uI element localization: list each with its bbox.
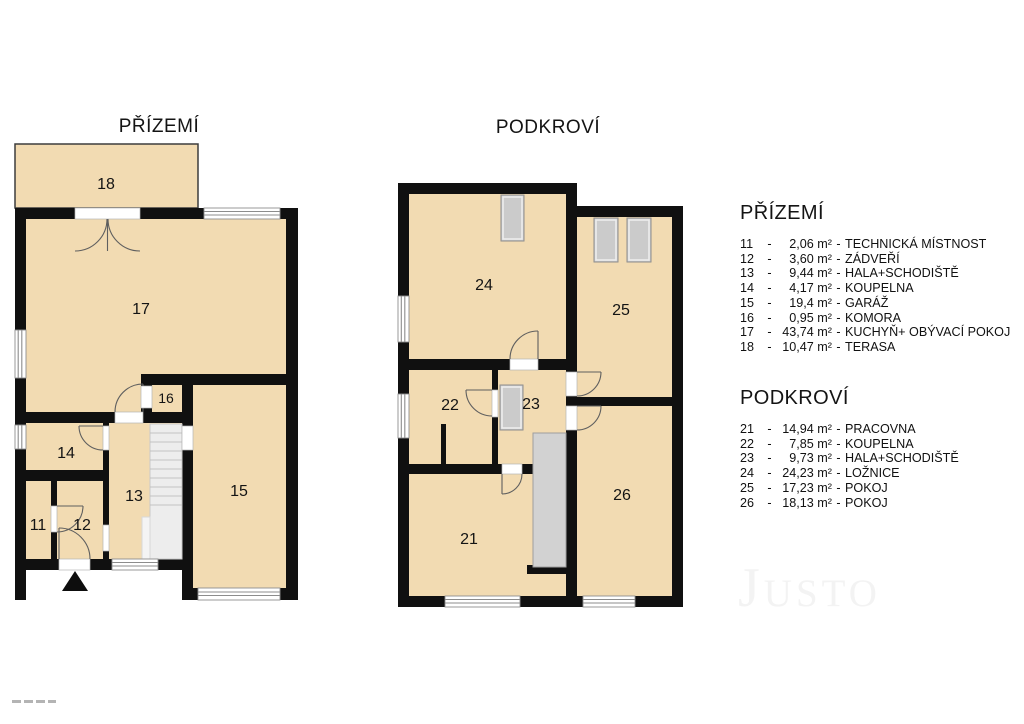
legend-item: 26 - 18,13 m² - POKOJ bbox=[740, 496, 1024, 511]
legend-room-area: 10,47 m² bbox=[777, 340, 832, 355]
legend-item: 25 - 17,23 m² - POKOJ bbox=[740, 481, 1024, 496]
fine-print bbox=[12, 700, 56, 703]
legend-room-area: 18,13 m² bbox=[777, 496, 832, 511]
attic-plan-title: PODKROVÍ bbox=[496, 117, 600, 139]
legend-separator: - bbox=[762, 311, 777, 326]
legend-separator: - bbox=[832, 237, 845, 252]
legend-attic-section: PODKROVÍ 21 - 14,94 m² - PRACOVNA 22 - 7… bbox=[740, 387, 1024, 510]
legend-attic-title: PODKROVÍ bbox=[740, 387, 1024, 410]
legend-separator: - bbox=[762, 451, 777, 466]
legend-room-name: HALA+SCHODIŠTĚ bbox=[845, 266, 959, 281]
legend-item: 16 - 0,95 m² - KOMORA bbox=[740, 311, 1024, 326]
legend-room-number: 14 bbox=[740, 281, 762, 296]
legend-separator: - bbox=[762, 481, 777, 496]
legend-separator: - bbox=[832, 496, 845, 511]
room-number-label: 11 bbox=[30, 517, 47, 534]
legend-separator: - bbox=[832, 340, 845, 355]
legend-room-area: 14,94 m² bbox=[777, 422, 832, 437]
legend-item: 18 - 10,47 m² - TERASA bbox=[740, 340, 1024, 355]
legend-room-number: 22 bbox=[740, 437, 762, 452]
legend-room-number: 15 bbox=[740, 296, 762, 311]
room-number-label: 25 bbox=[612, 302, 630, 319]
room-number-label: 17 bbox=[132, 301, 150, 318]
legend-room-area: 19,4 m² bbox=[777, 296, 832, 311]
legend-room-name: GARÁŽ bbox=[845, 296, 888, 311]
legend-separator: - bbox=[832, 451, 845, 466]
legend-room-name: TECHNICKÁ MÍSTNOST bbox=[845, 237, 986, 252]
legend-room-name: ZÁDVEŘÍ bbox=[845, 252, 900, 267]
legend-room-area: 9,44 m² bbox=[777, 266, 832, 281]
legend-room-name: TERASA bbox=[845, 340, 895, 355]
legend-item: 24 - 24,23 m² - LOŽNICE bbox=[740, 466, 1024, 481]
legend-separator: - bbox=[762, 466, 777, 481]
garage-door bbox=[198, 588, 280, 600]
legend-room-area: 4,17 m² bbox=[777, 281, 832, 296]
legend-separator: - bbox=[832, 311, 845, 326]
legend-separator: - bbox=[832, 481, 845, 496]
attic-floor-plan: 24 25 22 23 21 26 bbox=[385, 170, 700, 630]
room-number-label: 21 bbox=[460, 531, 478, 548]
room-number-label: 23 bbox=[522, 396, 540, 413]
legend-room-number: 16 bbox=[740, 311, 762, 326]
room-number-label: 13 bbox=[125, 488, 143, 505]
legend-room-number: 18 bbox=[740, 340, 762, 355]
ground-floor-plan: 18 17 16 14 11 12 13 15 bbox=[0, 110, 330, 640]
floorplan-image: PŘÍZEMÍ PODKROVÍ bbox=[0, 0, 1024, 724]
legend-item: 17 - 43,74 m² - KUCHYŇ+ OBÝVACÍ POKOJ bbox=[740, 325, 1024, 340]
legend-room-name: KOUPELNA bbox=[845, 281, 914, 296]
legend-separator: - bbox=[762, 422, 777, 437]
legend-separator: - bbox=[832, 281, 845, 296]
legend-room-area: 17,23 m² bbox=[777, 481, 832, 496]
legend-separator: - bbox=[762, 325, 777, 340]
legend-item: 23 - 9,73 m² - HALA+SCHODIŠTĚ bbox=[740, 451, 1024, 466]
legend-room-number: 21 bbox=[740, 422, 762, 437]
legend-room-name: PRACOVNA bbox=[845, 422, 916, 437]
legend-room-name: KUCHYŇ+ OBÝVACÍ POKOJ bbox=[845, 325, 1010, 340]
room-number-label: 12 bbox=[73, 517, 91, 534]
legend-ground-title: PŘÍZEMÍ bbox=[740, 202, 1024, 225]
legend-room-area: 0,95 m² bbox=[777, 311, 832, 326]
legend-room-area: 24,23 m² bbox=[777, 466, 832, 481]
legend-room-area: 2,06 m² bbox=[777, 237, 832, 252]
legend-item: 14 - 4,17 m² - KOUPELNA bbox=[740, 281, 1024, 296]
legend-item: 11 - 2,06 m² - TECHNICKÁ MÍSTNOST bbox=[740, 237, 1024, 252]
justo-watermark: Justo bbox=[738, 556, 881, 620]
legend-separator: - bbox=[762, 252, 777, 267]
room-number-label: 24 bbox=[475, 277, 493, 294]
legend-room-number: 11 bbox=[740, 237, 762, 252]
legend-separator: - bbox=[762, 281, 777, 296]
legend-room-number: 25 bbox=[740, 481, 762, 496]
legend-item: 15 - 19,4 m² - GARÁŽ bbox=[740, 296, 1024, 311]
legend-separator: - bbox=[762, 296, 777, 311]
legend-room-number: 24 bbox=[740, 466, 762, 481]
legend-separator: - bbox=[762, 237, 777, 252]
legend-room-number: 17 bbox=[740, 325, 762, 340]
legend-separator: - bbox=[762, 266, 777, 281]
attic-stairs bbox=[533, 433, 566, 567]
legend-room-area: 7,85 m² bbox=[777, 437, 832, 452]
room-number-label: 16 bbox=[158, 390, 174, 406]
legend-item: 12 - 3,60 m² - ZÁDVEŘÍ bbox=[740, 252, 1024, 267]
legend-ground-items: 11 - 2,06 m² - TECHNICKÁ MÍSTNOST 12 - 3… bbox=[740, 237, 1024, 355]
legend-room-area: 43,74 m² bbox=[777, 325, 832, 340]
legend-item: 22 - 7,85 m² - KOUPELNA bbox=[740, 437, 1024, 452]
legend-item: 21 - 14,94 m² - PRACOVNA bbox=[740, 422, 1024, 437]
legend-room-name: POKOJ bbox=[845, 496, 888, 511]
legend-separator: - bbox=[832, 266, 845, 281]
legend-separator: - bbox=[832, 325, 845, 340]
room-number-label: 15 bbox=[230, 483, 248, 500]
legend-separator: - bbox=[832, 296, 845, 311]
legend-attic-items: 21 - 14,94 m² - PRACOVNA 22 - 7,85 m² - … bbox=[740, 422, 1024, 510]
legend-separator: - bbox=[832, 252, 845, 267]
legend-separator: - bbox=[762, 496, 777, 511]
legend-room-name: HALA+SCHODIŠTĚ bbox=[845, 451, 959, 466]
entrance-arrow-icon bbox=[62, 571, 88, 591]
legend-room-name: LOŽNICE bbox=[845, 466, 900, 481]
legend-room-number: 13 bbox=[740, 266, 762, 281]
room-number-label: 14 bbox=[57, 445, 75, 462]
room-number-label: 22 bbox=[441, 397, 459, 414]
legend-room-number: 12 bbox=[740, 252, 762, 267]
legend-separator: - bbox=[832, 422, 845, 437]
legend-separator: - bbox=[832, 437, 845, 452]
room-number-label: 26 bbox=[613, 487, 631, 504]
legend-room-area: 3,60 m² bbox=[777, 252, 832, 267]
legend-item: 13 - 9,44 m² - HALA+SCHODIŠTĚ bbox=[740, 266, 1024, 281]
legend-separator: - bbox=[762, 340, 777, 355]
legend-separator: - bbox=[832, 466, 845, 481]
legend-room-name: KOUPELNA bbox=[845, 437, 914, 452]
legend-room-name: KOMORA bbox=[845, 311, 901, 326]
legend-room-number: 23 bbox=[740, 451, 762, 466]
room-number-label: 18 bbox=[97, 176, 115, 193]
legend-room-name: POKOJ bbox=[845, 481, 888, 496]
legend-room-number: 26 bbox=[740, 496, 762, 511]
legend-ground-section: PŘÍZEMÍ 11 - 2,06 m² - TECHNICKÁ MÍSTNOS… bbox=[740, 202, 1024, 355]
legend-separator: - bbox=[762, 437, 777, 452]
legend-room-area: 9,73 m² bbox=[777, 451, 832, 466]
